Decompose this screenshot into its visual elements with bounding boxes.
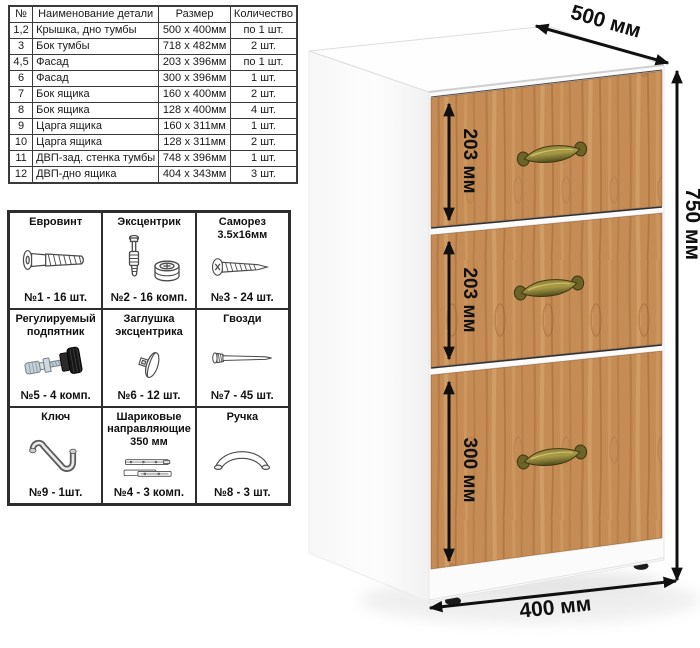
hardware-qty: №6 - 12 шт.	[118, 390, 181, 403]
part-name: ДВП-зад. стенка тумбы	[33, 151, 159, 167]
hardware-title: Евровинт	[29, 216, 82, 229]
hardware-title: Эксцентрик	[117, 216, 180, 229]
height-dimension-label: 750 мм	[681, 188, 700, 260]
table-row: 4,5Фасад203 x 396ммпо 1 шт.	[9, 55, 297, 71]
part-num: 3	[9, 39, 33, 55]
part-qty: по 1 шт.	[230, 23, 297, 39]
hardware-qty: №1 - 16 шт.	[24, 292, 87, 305]
hardware-title: Гвозди	[223, 313, 261, 326]
part-size: 718 x 482мм	[159, 39, 231, 55]
table-row: 10Царга ящика128 x 311мм2 шт.	[9, 135, 297, 151]
part-num: 6	[9, 71, 33, 87]
handle-icon	[199, 423, 286, 487]
part-num: 4,5	[9, 55, 33, 71]
part-num: 7	[9, 87, 33, 103]
parts-table: № Наименование детали Размер Количество …	[8, 5, 298, 184]
hardware-item-excentric: Эксцентрик №2 - 16 ком	[102, 212, 195, 309]
part-name: Бок ящика	[33, 87, 159, 103]
part-name: ДВП-дно ящика	[33, 167, 159, 184]
hardware-qty: №5 - 4 комп.	[21, 390, 91, 403]
cabinet-side-panel	[309, 51, 429, 602]
part-name: Бок ящика	[33, 103, 159, 119]
part-name: Царга ящика	[33, 135, 159, 151]
part-size: 128 x 311мм	[159, 135, 231, 151]
part-qty: 2 шт.	[230, 39, 297, 55]
part-qty: 2 шт.	[230, 87, 297, 103]
part-qty: 1 шт.	[230, 151, 297, 167]
part-qty: 4 шт.	[230, 103, 297, 119]
part-num: 1,2	[9, 23, 33, 39]
cam-cover-icon	[105, 338, 192, 389]
hardware-title: Ключ	[41, 411, 70, 424]
hardware-item-nails: Гвозди №7 - 45 шт.	[196, 309, 289, 406]
col-header-size: Размер	[159, 6, 231, 23]
table-row: 6Фасад300 x 396мм1 шт.	[9, 71, 297, 87]
part-qty: по 1 шт.	[230, 55, 297, 71]
hardware-qty: №3 - 24 шт.	[211, 292, 274, 305]
table-row: 1,2Крышка, дно тумбы500 x 400ммпо 1 шт.	[9, 23, 297, 39]
drawer3-dimension-label: 300 мм	[459, 437, 480, 502]
table-row: 12ДВП-дно ящика404 x 343мм3 шт.	[9, 167, 297, 184]
hardware-item-eurovint: Евровинт №1 - 16 шт.	[9, 212, 102, 309]
adjustable-foot-icon	[12, 338, 99, 389]
part-qty: 1 шт.	[230, 119, 297, 135]
drawer2-dimension-label: 203 мм	[459, 267, 480, 332]
table-row: 8Бок ящика128 x 400мм4 шт.	[9, 103, 297, 119]
hardware-qty: №7 - 45 шт.	[211, 390, 274, 403]
self-tapping-screw-icon	[199, 241, 286, 292]
part-qty: 2 шт.	[230, 135, 297, 151]
hardware-title: Шариковые направляющие 350 мм	[105, 411, 192, 449]
part-name: Бок тумбы	[33, 39, 159, 55]
part-name: Фасад	[33, 71, 159, 87]
part-num: 11	[9, 151, 33, 167]
part-size: 404 x 343мм	[159, 167, 231, 184]
drawer1-dimension-label: 203 мм	[459, 128, 480, 193]
part-qty: 3 шт.	[230, 167, 297, 184]
part-num: 9	[9, 119, 33, 135]
hardware-grid: Евровинт №1 - 16 шт. Эксцентрик	[7, 210, 291, 506]
table-row: 3Бок тумбы718 x 482мм2 шт.	[9, 39, 297, 55]
hardware-item-slides: Шариковые направляющие 350 мм №4 - 3 ком…	[102, 407, 195, 504]
hardware-title: Саморез 3.5x16мм	[199, 216, 286, 241]
part-name: Фасад	[33, 55, 159, 71]
part-name: Царга ящика	[33, 119, 159, 135]
part-num: 10	[9, 135, 33, 151]
col-header-qty: Количество	[230, 6, 297, 23]
hardware-item-key: Ключ №9 - 1шт.	[9, 407, 102, 504]
cam-lock-icon	[105, 229, 192, 293]
part-size: 748 x 396мм	[159, 151, 231, 167]
ball-slides-icon	[105, 448, 192, 487]
part-qty: 1 шт.	[230, 71, 297, 87]
table-row: 11ДВП-зад. стенка тумбы748 x 396мм1 шт.	[9, 151, 297, 167]
part-size: 160 x 311мм	[159, 119, 231, 135]
part-size: 203 x 396мм	[159, 55, 231, 71]
part-size: 300 x 396мм	[159, 71, 231, 87]
hardware-qty: №2 - 16 комп.	[111, 292, 188, 305]
part-size: 128 x 400мм	[159, 103, 231, 119]
hardware-item-handle: Ручка №8 - 3 шт.	[196, 407, 289, 504]
hardware-qty: №4 - 3 комп.	[114, 487, 184, 500]
hardware-title: Заглушка эксцентрика	[105, 313, 192, 338]
table-row: 9Царга ящика160 x 311мм1 шт.	[9, 119, 297, 135]
hardware-qty: №9 - 1шт.	[29, 487, 82, 500]
hardware-item-samorez: Саморез 3.5x16мм №3 - 24 шт.	[196, 212, 289, 309]
euro-screw-icon	[12, 229, 99, 293]
hex-key-icon	[12, 423, 99, 487]
part-num: 8	[9, 103, 33, 119]
hardware-title: Регулируемый подпятник	[12, 313, 99, 338]
hardware-item-cam-cover: Заглушка эксцентрика №6 - 12 шт.	[102, 309, 195, 406]
hardware-qty: №8 - 3 шт.	[214, 487, 270, 500]
col-header-name: Наименование детали	[33, 6, 159, 23]
table-row: 7Бок ящика160 x 400мм2 шт.	[9, 87, 297, 103]
col-header-num: №	[9, 6, 33, 23]
part-num: 12	[9, 167, 33, 184]
nail-icon	[199, 326, 286, 390]
part-size: 500 x 400мм	[159, 23, 231, 39]
hardware-item-foot: Регулируемый подпятник	[9, 309, 102, 406]
part-name: Крышка, дно тумбы	[33, 23, 159, 39]
hardware-title: Ручка	[227, 411, 258, 424]
parts-table-header-row: № Наименование детали Размер Количество	[9, 6, 297, 23]
part-size: 160 x 400мм	[159, 87, 231, 103]
